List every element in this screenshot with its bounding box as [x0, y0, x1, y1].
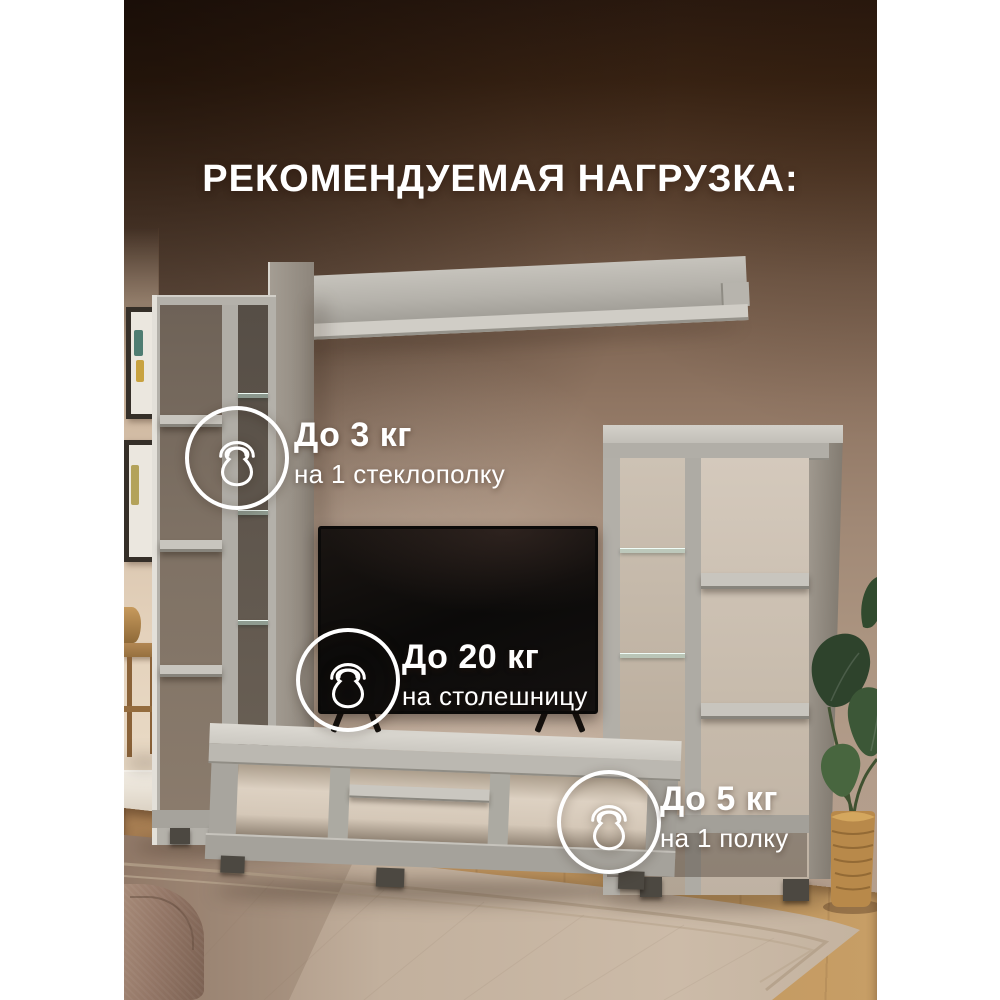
- console-shelf: [124, 706, 154, 712]
- callout-badge-glass-shelf: [185, 406, 289, 510]
- tv-stand-divider: [328, 766, 351, 841]
- callout-tabletop: До 20 кг на столешницу: [402, 639, 588, 711]
- glass-shelf: [620, 548, 685, 553]
- callout-surface: на 1 стеклополку: [294, 459, 505, 489]
- shelf-plank: [160, 665, 222, 677]
- callout-surface: на 1 полку: [660, 823, 789, 853]
- callout-weight: До 3 кг: [294, 417, 505, 453]
- glass-shelf: [238, 510, 268, 515]
- glass-shelf: [620, 653, 685, 658]
- tv-stand-side-panel: [209, 761, 239, 838]
- callout-shelf: До 5 кг на 1 полку: [660, 781, 789, 853]
- glass-shelf: [238, 620, 268, 625]
- page-title: РЕКОМЕНДУЕМАЯ НАГРУЗКА:: [124, 158, 877, 201]
- glass-shelf: [238, 393, 268, 398]
- callout-badge-shelf: [557, 770, 661, 874]
- callout-weight: До 20 кг: [402, 639, 588, 675]
- right-bookcase-top: [603, 425, 843, 443]
- shelf-plank: [160, 540, 222, 552]
- callout-surface: на столешницу: [402, 681, 588, 711]
- kettlebell-icon: [208, 429, 266, 487]
- potted-plant: [779, 555, 877, 960]
- callout-badge-tabletop: [296, 628, 400, 732]
- infographic-canvas: РЕКОМЕНДУЕМАЯ НАГРУЗКА: До 3 кг на 1 сте…: [0, 0, 1000, 1000]
- furniture-foot: [618, 871, 645, 890]
- wooden-bowl: [124, 607, 141, 643]
- tv-stand-divider: [487, 772, 510, 847]
- kettlebell-icon: [319, 651, 377, 709]
- artwork-shape: [131, 465, 139, 505]
- furniture-foot: [376, 868, 405, 888]
- artwork-shape: [136, 360, 144, 382]
- artwork-shape: [134, 330, 143, 356]
- furniture-foot: [170, 828, 190, 844]
- furniture-foot: [220, 856, 245, 874]
- kettlebell-icon: [580, 793, 638, 851]
- left-bookcase-lit-edge: [152, 295, 157, 845]
- sofa-seam: [130, 896, 194, 950]
- callout-glass-shelf: До 3 кг на 1 стеклополку: [294, 417, 505, 489]
- callout-weight: До 5 кг: [660, 781, 789, 817]
- room-photo: РЕКОМЕНДУЕМАЯ НАГРУЗКА: До 3 кг на 1 сте…: [124, 0, 877, 1000]
